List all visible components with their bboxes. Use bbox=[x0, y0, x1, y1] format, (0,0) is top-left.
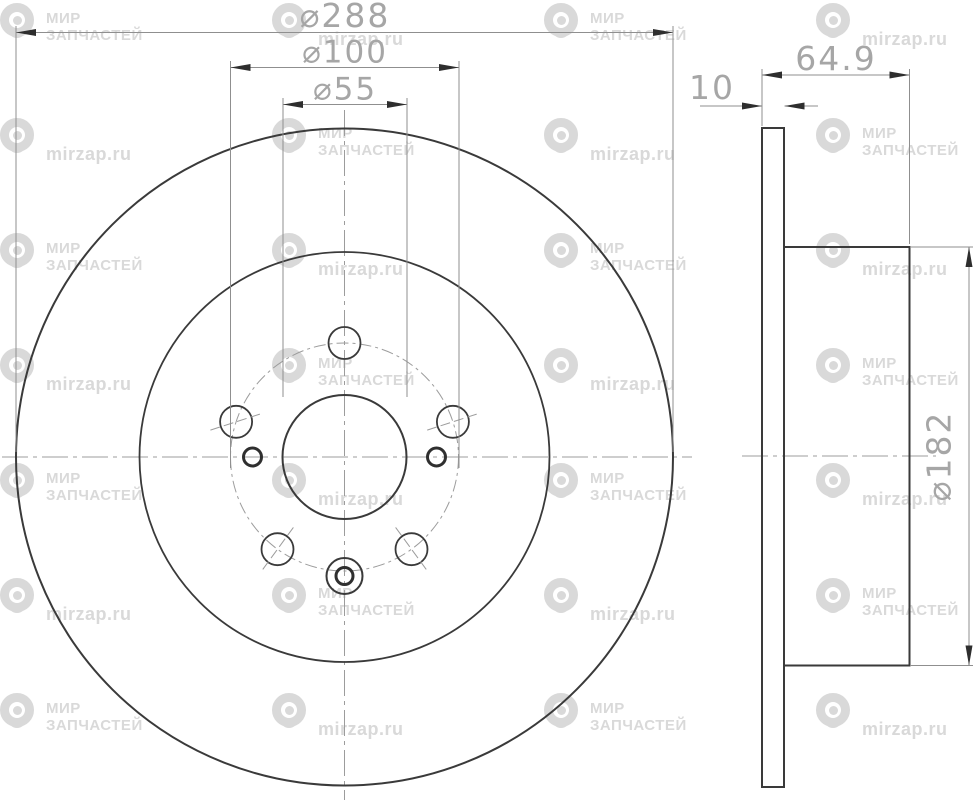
arrow-right bbox=[653, 29, 673, 36]
technical-drawing-page: МИРЗАПЧАСТЕЙmirzap.ruМИРЗАПЧАСТЕЙmirzap.… bbox=[0, 0, 975, 800]
radial-centerline bbox=[427, 414, 478, 431]
arrow-left-pointing bbox=[785, 103, 805, 110]
dim-overall-width-label: 64.9 bbox=[795, 39, 876, 78]
dim-disc-thickness-label: 10 bbox=[689, 68, 735, 107]
arrow-right-pointing bbox=[742, 103, 762, 110]
arrow-up bbox=[966, 247, 973, 267]
bolt-hole-upper-right bbox=[437, 406, 469, 438]
arrow-left bbox=[762, 72, 782, 79]
side-view: 64.9 10 ⌀182 bbox=[689, 39, 973, 787]
dim-hat-diameter-label: ⌀182 bbox=[920, 411, 959, 502]
arrow-right bbox=[439, 64, 459, 71]
disc-plate-profile bbox=[762, 128, 784, 787]
dim-bolt-circle-label: ⌀100 bbox=[302, 35, 388, 71]
brake-disc-drawing: ⌀288 ⌀100 ⌀55 bbox=[0, 0, 975, 800]
dimension-hat-diameter: ⌀182 bbox=[910, 247, 973, 666]
dim-center-bore-label: ⌀55 bbox=[313, 72, 377, 108]
bolt-hole-lower-left bbox=[262, 533, 294, 565]
arrow-left bbox=[283, 101, 303, 108]
arrow-left bbox=[16, 29, 36, 36]
arrow-right bbox=[890, 72, 910, 79]
arrow-down bbox=[966, 646, 973, 666]
front-view: ⌀288 ⌀100 ⌀55 bbox=[2, 0, 692, 800]
dim-outer-diameter-label: ⌀288 bbox=[300, 0, 391, 35]
arrow-right bbox=[387, 101, 407, 108]
bolt-hole-lower-right bbox=[396, 533, 428, 565]
arrow-left bbox=[231, 64, 251, 71]
